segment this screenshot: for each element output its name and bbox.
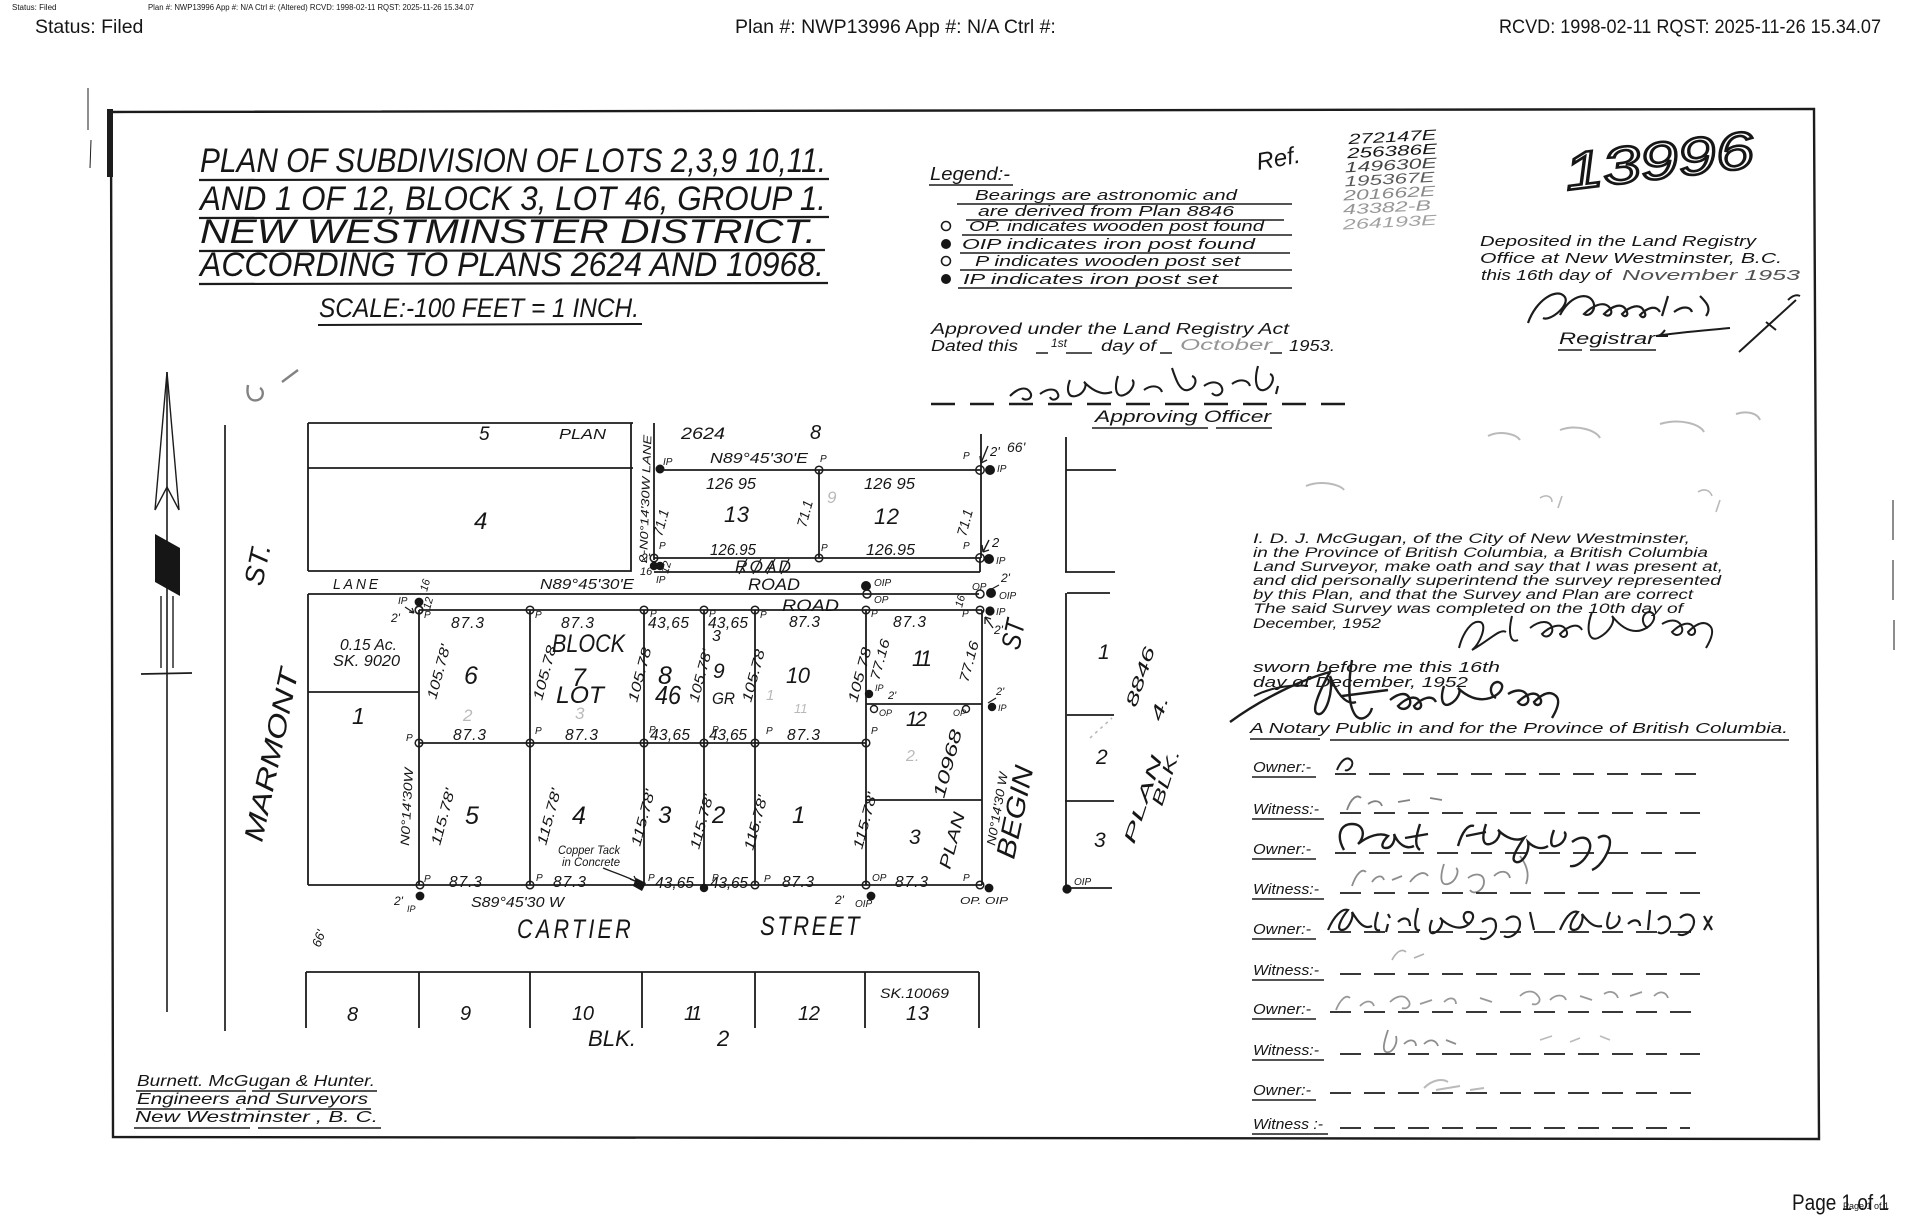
svg-text:87.3: 87.3 (449, 874, 482, 891)
svg-text:87.3: 87.3 (453, 727, 486, 744)
svg-text:ROAD: ROAD (748, 575, 800, 594)
svg-text:S89°45'30 W: S89°45'30 W (471, 894, 566, 911)
svg-text:LANE: LANE (333, 576, 381, 593)
svg-text:OIP: OIP (1074, 877, 1092, 888)
svg-text:Approved under the Land Regist: Approved under the Land Registry Act (930, 321, 1290, 338)
svg-text:1953.: 1953. (1289, 338, 1335, 355)
svg-text:P: P (871, 609, 878, 620)
svg-text:Burnett. McGugan & Hunter.: Burnett. McGugan & Hunter. (137, 1073, 375, 1090)
svg-text:sworn before me this 16th: sworn before me this 16th (1253, 660, 1500, 676)
svg-text:2': 2' (995, 686, 1005, 698)
svg-text:P: P (963, 873, 970, 884)
svg-text:IP: IP (996, 556, 1006, 567)
svg-text:October: October (1180, 337, 1273, 354)
svg-text:OP. OIP: OP. OIP (960, 896, 1008, 907)
svg-text:10: 10 (786, 663, 811, 688)
svg-text:13: 13 (724, 502, 750, 527)
svg-text:by this Plan, and that the Sur: by this Plan, and that the Survey and Pl… (1253, 587, 1695, 602)
svg-text:11: 11 (794, 701, 808, 716)
svg-text:A Notary Public in and for the: A Notary Public in and for the Province … (1249, 721, 1788, 737)
svg-text:P: P (760, 610, 767, 621)
svg-text:P: P (659, 541, 666, 552)
svg-text:I. D. J. McGugan, of the City: I. D. J. McGugan, of the City of New Wes… (1253, 531, 1690, 546)
svg-text:87.3: 87.3 (895, 874, 928, 891)
svg-text:1: 1 (1098, 641, 1110, 664)
svg-text:OIP: OIP (874, 578, 892, 589)
svg-text:105.78': 105.78' (685, 646, 715, 704)
svg-text:IP: IP (407, 904, 416, 914)
svg-text:P: P (424, 610, 431, 621)
svg-text:4: 4 (474, 508, 487, 535)
svg-text:OIP indicates iron post found: OIP indicates iron post found (962, 236, 1256, 253)
svg-text:126.95: 126.95 (866, 542, 915, 559)
svg-text:P: P (821, 543, 828, 554)
svg-text:Plan #: NWP13996 App #: N/A Ct: Plan #: NWP13996 App #: N/A Ctrl #: (735, 16, 1056, 38)
svg-text:N0°14'30W: N0°14'30W (398, 766, 416, 846)
svg-text:12: 12 (798, 1003, 820, 1025)
svg-text:New Westminster , B. C.: New Westminster , B. C. (135, 1109, 378, 1126)
svg-text:and did personally superintend: and did personally superintend the surve… (1253, 573, 1722, 588)
svg-text:2': 2' (390, 611, 401, 625)
svg-text:P: P (712, 873, 719, 884)
svg-text:Owner:-: Owner:- (1253, 921, 1311, 938)
svg-text:43,65: 43,65 (655, 875, 694, 892)
svg-text:STREET: STREET (760, 911, 862, 941)
svg-text:P: P (764, 874, 771, 885)
svg-text:2': 2' (393, 894, 404, 908)
svg-text:Owner:-: Owner:- (1253, 759, 1311, 776)
svg-text:IP: IP (996, 607, 1006, 618)
svg-text:Status: Filed: Status: Filed (12, 3, 56, 12)
svg-text:2: 2 (462, 706, 473, 725)
svg-text:Dated this: Dated this (931, 338, 1018, 355)
svg-text:126 95: 126 95 (864, 476, 915, 493)
svg-text:P: P (962, 609, 969, 620)
svg-text:OP: OP (879, 708, 892, 718)
svg-text:P: P (424, 874, 431, 885)
svg-text:10: 10 (572, 1003, 594, 1025)
svg-text:87.3: 87.3 (451, 615, 484, 632)
svg-text:115.78': 115.78' (533, 785, 564, 847)
svg-text:9: 9 (827, 488, 837, 507)
svg-text:MARMONT: MARMONT (239, 663, 306, 844)
svg-text:11: 11 (684, 1003, 702, 1025)
svg-text:2': 2' (989, 444, 1000, 459)
svg-text:P: P (963, 541, 970, 552)
svg-text:1: 1 (352, 703, 365, 729)
svg-text:Witness:-: Witness:- (1253, 1042, 1319, 1059)
svg-text:4.: 4. (1148, 694, 1173, 723)
svg-text:10968: 10968 (930, 727, 967, 800)
svg-text:Plan #: NWP13996 App #: N/A Ct: Plan #: NWP13996 App #: N/A Ctrl #: (Alt… (148, 3, 475, 12)
svg-text:87.3: 87.3 (561, 615, 594, 632)
svg-text:Status: Filed: Status: Filed (35, 16, 143, 38)
svg-text:12: 12 (874, 504, 899, 529)
svg-text:115.78': 115.78' (427, 785, 458, 847)
svg-text:IP: IP (997, 464, 1007, 475)
svg-text:71.1: 71.1 (649, 507, 672, 537)
svg-text:8: 8 (810, 422, 821, 444)
svg-text:2624: 2624 (680, 424, 725, 443)
svg-text:Copper Tack: Copper Tack (558, 845, 621, 857)
svg-text:Legend:-: Legend:- (930, 164, 1010, 184)
svg-text:Witness:-: Witness:- (1253, 962, 1319, 979)
svg-text:87.3: 87.3 (789, 614, 820, 631)
svg-text:3: 3 (1094, 829, 1106, 852)
svg-text:5: 5 (479, 424, 490, 445)
svg-text:OP. indicates wooden post foun: OP. indicates wooden post found (969, 218, 1265, 235)
svg-text:Witness:-: Witness:- (1253, 881, 1319, 898)
svg-text:71.1: 71.1 (793, 498, 816, 528)
svg-text:8: 8 (347, 1004, 358, 1026)
svg-text:ST: ST (996, 615, 1032, 653)
svg-text:Bearings are astronomic and: Bearings are astronomic and (975, 187, 1238, 204)
svg-text:43,65: 43,65 (650, 727, 690, 744)
svg-text:5: 5 (465, 802, 479, 830)
svg-text:9: 9 (460, 1003, 471, 1025)
svg-text:Registrar: Registrar (1559, 329, 1657, 348)
svg-text:P indicates wooden post set: P indicates wooden post set (975, 253, 1241, 270)
svg-text:day of: day of (1101, 338, 1158, 355)
svg-text:Approving Officer: Approving Officer (1094, 407, 1273, 426)
svg-text:GR: GR (712, 689, 735, 708)
svg-text:126 95: 126 95 (706, 476, 756, 493)
svg-text:OIP: OIP (999, 591, 1017, 602)
svg-text:87.3: 87.3 (893, 614, 926, 631)
svg-text:November 1953: November 1953 (1622, 267, 1801, 284)
svg-text:P: P (650, 609, 657, 620)
svg-text:71.1: 71.1 (953, 507, 976, 537)
svg-text:2': 2' (640, 551, 651, 565)
svg-text:December, 1952: December, 1952 (1253, 616, 1382, 631)
svg-text:16: 16 (953, 593, 968, 609)
svg-text:3: 3 (658, 802, 672, 829)
svg-text:SK. 9020: SK. 9020 (333, 653, 400, 670)
svg-text:ACCORDING TO PLANS 2624 AND 10: ACCORDING TO PLANS 2624 AND 10968. (198, 246, 824, 284)
svg-text:P: P (535, 610, 542, 621)
svg-text:46: 46 (655, 680, 681, 710)
svg-text:P: P (820, 454, 827, 465)
svg-text:Office at New Westminster, B.C: Office at New Westminster, B.C. (1480, 250, 1782, 267)
svg-text:Engineers and Surveyors: Engineers and Surveyors (137, 1091, 368, 1108)
svg-text:N89°45'30'E: N89°45'30'E (540, 576, 635, 593)
svg-text:The said Survey was completed: The said Survey was completed on the 10t… (1253, 601, 1685, 616)
svg-text:IP: IP (875, 683, 884, 693)
svg-text:BLK.: BLK. (588, 1026, 636, 1051)
svg-text:P: P (648, 873, 655, 884)
svg-text:OP: OP (972, 582, 987, 593)
svg-text:OP: OP (872, 873, 887, 884)
svg-text:3: 3 (909, 826, 921, 849)
svg-text:11: 11 (912, 646, 932, 671)
svg-text:Land Surveyor, make oath and s: Land Surveyor, make oath and say that I … (1253, 559, 1723, 574)
svg-text:IP: IP (656, 575, 666, 586)
svg-text:Witness :-: Witness :- (1253, 1116, 1323, 1133)
svg-text:66': 66' (309, 927, 329, 949)
svg-text:SCALE:-100 FEET = 1 INCH.: SCALE:-100 FEET = 1 INCH. (319, 293, 639, 323)
svg-text:PLAN: PLAN (559, 426, 606, 443)
svg-text:1: 1 (792, 802, 805, 829)
svg-text:115.78': 115.78' (849, 789, 880, 851)
svg-text:ROAD: ROAD (782, 596, 839, 615)
svg-text:Deposited in the Land Registry: Deposited in the Land Registry (1480, 233, 1758, 250)
svg-text:P: P (766, 726, 773, 737)
svg-text:this 16th day of: this 16th day of (1481, 267, 1613, 284)
svg-text:P: P (406, 733, 413, 744)
svg-text:OP: OP (953, 708, 966, 718)
svg-text:77.16: 77.16 (956, 639, 982, 684)
svg-text:87.3: 87.3 (565, 727, 598, 744)
svg-text:IP: IP (998, 703, 1007, 713)
svg-text:PLAN: PLAN (936, 809, 970, 871)
svg-text:0.15 Ac.: 0.15 Ac. (340, 637, 397, 654)
svg-text:P: P (709, 609, 716, 620)
svg-text:87.3: 87.3 (782, 874, 814, 891)
svg-text:2: 2 (1095, 746, 1108, 769)
svg-text:Owner:-: Owner:- (1253, 841, 1311, 858)
svg-text:P: P (649, 725, 656, 736)
svg-text:Ref.: Ref. (1254, 142, 1302, 176)
svg-text:2-N0°14'30W LANE: 2-N0°14'30W LANE (638, 434, 655, 564)
svg-text:IP: IP (663, 457, 673, 468)
svg-text:16: 16 (640, 566, 653, 578)
svg-text:16: 16 (418, 577, 433, 593)
svg-text:Page 1 of 1: Page 1 of 1 (1843, 1201, 1889, 1211)
svg-text:P: P (712, 725, 719, 736)
svg-text:P: P (535, 726, 542, 737)
svg-text:2': 2' (1000, 571, 1011, 585)
svg-text:105.78: 105.78 (738, 647, 767, 704)
svg-text:P: P (871, 726, 878, 737)
svg-text:CARTIER: CARTIER (517, 914, 634, 944)
svg-text:in the Province of British Col: in the Province of British Columbia, a B… (1253, 545, 1709, 560)
svg-text:2': 2' (887, 690, 897, 702)
svg-text:13996: 13996 (1561, 121, 1757, 202)
svg-text:87.3: 87.3 (787, 727, 820, 744)
svg-text:4: 4 (572, 802, 586, 830)
svg-text:SK.10069: SK.10069 (880, 986, 950, 1001)
svg-text:3: 3 (575, 704, 585, 723)
svg-text:IP indicates iron post set: IP indicates iron post set (963, 271, 1219, 288)
svg-text:2.: 2. (905, 748, 919, 765)
svg-text:115.78': 115.78' (627, 786, 658, 848)
svg-text:12: 12 (421, 596, 436, 611)
svg-text:P: P (536, 873, 543, 884)
svg-text:OP: OP (874, 595, 889, 606)
svg-text:2: 2 (991, 535, 1000, 550)
svg-text:13: 13 (906, 1003, 929, 1025)
svg-text:PLAN OF SUBDIVISION OF LOTS 2,: PLAN OF SUBDIVISION OF LOTS 2,3,9 10,11. (200, 142, 826, 180)
svg-text:BLOCK: BLOCK (552, 630, 626, 658)
svg-text:2': 2' (834, 893, 845, 907)
svg-text:115.78': 115.78' (740, 792, 770, 852)
svg-text:OIP: OIP (855, 899, 873, 910)
svg-text:1st: 1st (1051, 336, 1068, 350)
svg-text:12: 12 (906, 708, 927, 731)
svg-text:1: 1 (766, 687, 774, 704)
svg-text:105.78: 105.78 (529, 643, 559, 701)
svg-text:9: 9 (713, 660, 725, 683)
svg-text:6: 6 (464, 662, 478, 690)
svg-text:P: P (963, 451, 970, 462)
svg-text:87.3: 87.3 (553, 874, 586, 891)
svg-text:N89°45'30'E: N89°45'30'E (710, 450, 809, 467)
svg-text:Witness:-: Witness:- (1253, 801, 1319, 818)
svg-text:Owner:-: Owner:- (1253, 1001, 1311, 1018)
svg-text:RCVD: 1998-02-11 RQST: 2025-11: RCVD: 1998-02-11 RQST: 2025-11-26 15.34.… (1499, 16, 1881, 38)
svg-text:Owner:-: Owner:- (1253, 1082, 1311, 1099)
svg-text:ST.: ST. (239, 541, 277, 588)
svg-text:105.78': 105.78' (423, 641, 453, 701)
svg-text:IP: IP (398, 596, 408, 607)
svg-text:2: 2 (716, 1026, 729, 1051)
svg-text:105.78: 105.78 (624, 645, 654, 703)
svg-text:in Concrete: in Concrete (562, 857, 620, 869)
svg-text:66': 66' (1007, 439, 1027, 455)
